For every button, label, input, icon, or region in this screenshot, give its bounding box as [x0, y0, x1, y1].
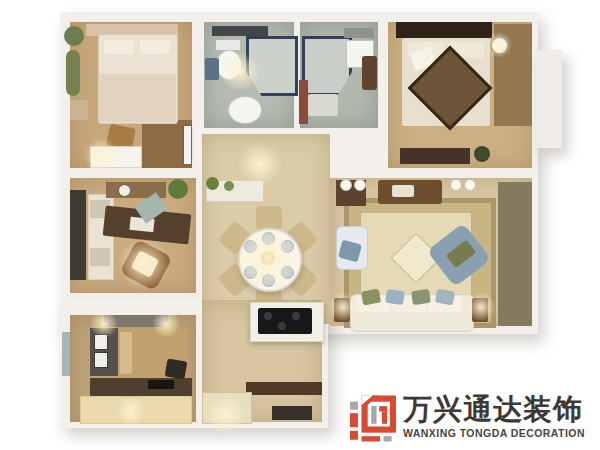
glow-sofa-right [466, 292, 496, 322]
bath1-sink [228, 96, 262, 124]
study-bookshelf [70, 190, 86, 280]
floor-plan [0, 0, 600, 450]
sofa-pillow-3 [411, 289, 431, 305]
wall-slab-bay-window [536, 50, 562, 148]
glow-bath1 [220, 52, 260, 92]
bath1-shelf [212, 26, 268, 36]
bedroom2-pillow-right [140, 40, 170, 54]
study-clock [118, 184, 131, 197]
glow-bedroom3-1 [90, 310, 118, 338]
glow-bedroom3-2 [152, 310, 180, 338]
kitchen-burner-3 [278, 322, 286, 330]
glow-bedroom3-bench [116, 396, 146, 426]
glow-entry [206, 394, 246, 434]
kitchen-lower-cabinet [246, 382, 322, 395]
apartment-floorplan-3d-render: 万兴通达装饰 WANXING TONGDA DECORATION [0, 0, 600, 450]
master-headboard [396, 22, 492, 38]
glow-dining [232, 222, 304, 294]
sofa-pillow-4 [435, 289, 455, 306]
bedroom3-bed-pillow [120, 332, 132, 374]
bedroom2-plant-2 [66, 50, 80, 96]
ceiling-light-4 [464, 179, 476, 191]
bedroom2-blanket [98, 74, 176, 122]
bedroom2-plant-1 [64, 26, 84, 46]
glow-study [118, 238, 170, 290]
master-dresser [400, 148, 470, 164]
glow-sofa-left [328, 292, 358, 322]
bedroom2-door-leaf [184, 126, 191, 164]
glow-bedroom2-lamp [84, 138, 120, 174]
company-name-english: WANXING TONGDA DECORATION [403, 427, 585, 439]
glow-corridor [238, 142, 282, 186]
bedroom3-frame-2 [94, 352, 108, 368]
kitchen-burner-1 [264, 312, 272, 320]
dining-sideboard-plant-2 [224, 181, 234, 191]
company-name-chinese: 万兴通达装饰 [403, 394, 585, 424]
bedroom3-dark-floor [90, 378, 192, 396]
bath1-toilet-tank [216, 40, 240, 50]
master-plant [474, 146, 490, 162]
study-bench-cushion-2 [90, 248, 110, 266]
bath2-counter [344, 28, 374, 38]
living-coffee-tray [392, 185, 414, 197]
glow-master-lamp [486, 32, 512, 58]
entry-doormat [272, 406, 312, 420]
company-logo: 万兴通达装饰 WANXING TONGDA DECORATION [350, 394, 585, 443]
ceiling-light-2 [354, 179, 366, 191]
bedroom3-tv [148, 380, 174, 389]
bedroom2-side-table [70, 100, 88, 120]
bath2-cabinet [362, 56, 377, 90]
bath2-rug [308, 94, 338, 116]
study-plant [168, 179, 188, 199]
sofa-pillow-2 [385, 289, 405, 305]
bedroom3-window [62, 332, 70, 376]
bath1-washing-machine [205, 58, 219, 80]
bath2-door [299, 80, 308, 124]
dining-sideboard-plant [206, 177, 219, 190]
bedroom3-chair [165, 358, 188, 379]
ceiling-light-1 [340, 179, 352, 191]
company-logo-text: 万兴通达装饰 WANXING TONGDA DECORATION [403, 394, 585, 439]
bedroom2-pillow-left [104, 40, 134, 54]
kitchen-burner-2 [292, 312, 300, 320]
ceiling-light-3 [450, 179, 462, 191]
wanxing-logo-icon [350, 394, 396, 443]
balcony-blinds [498, 182, 532, 326]
